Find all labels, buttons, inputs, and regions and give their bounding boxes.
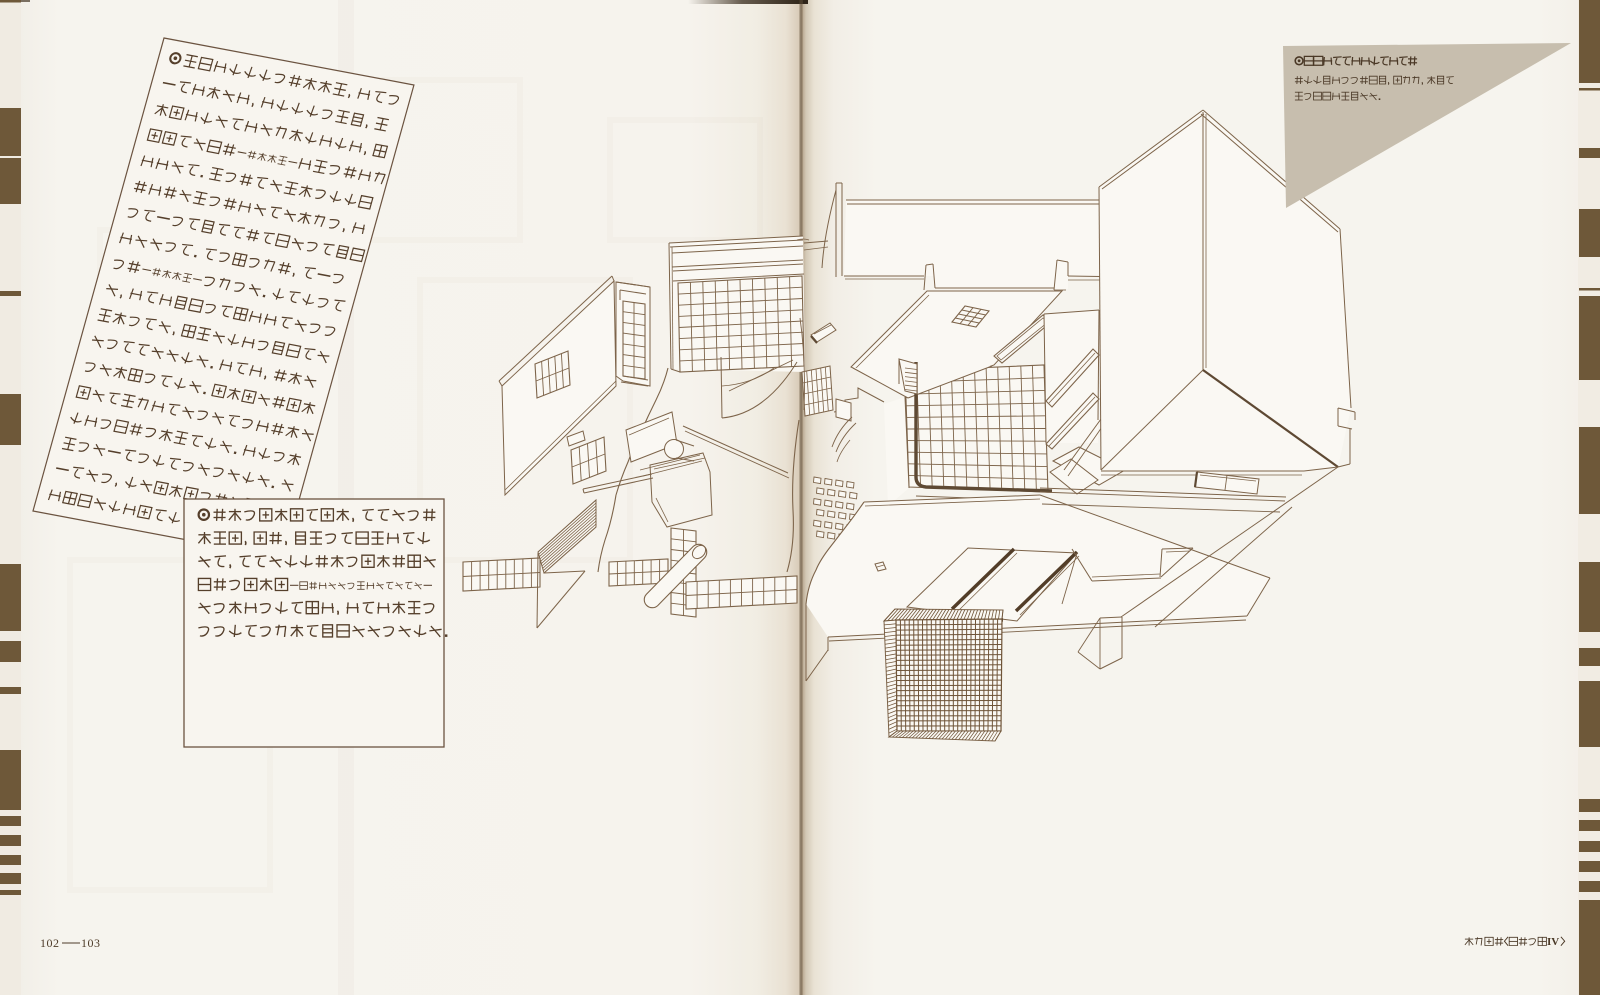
svg-text:102: 102 bbox=[40, 936, 60, 950]
svg-text:IV: IV bbox=[1547, 936, 1559, 948]
svg-text:103: 103 bbox=[81, 936, 101, 950]
